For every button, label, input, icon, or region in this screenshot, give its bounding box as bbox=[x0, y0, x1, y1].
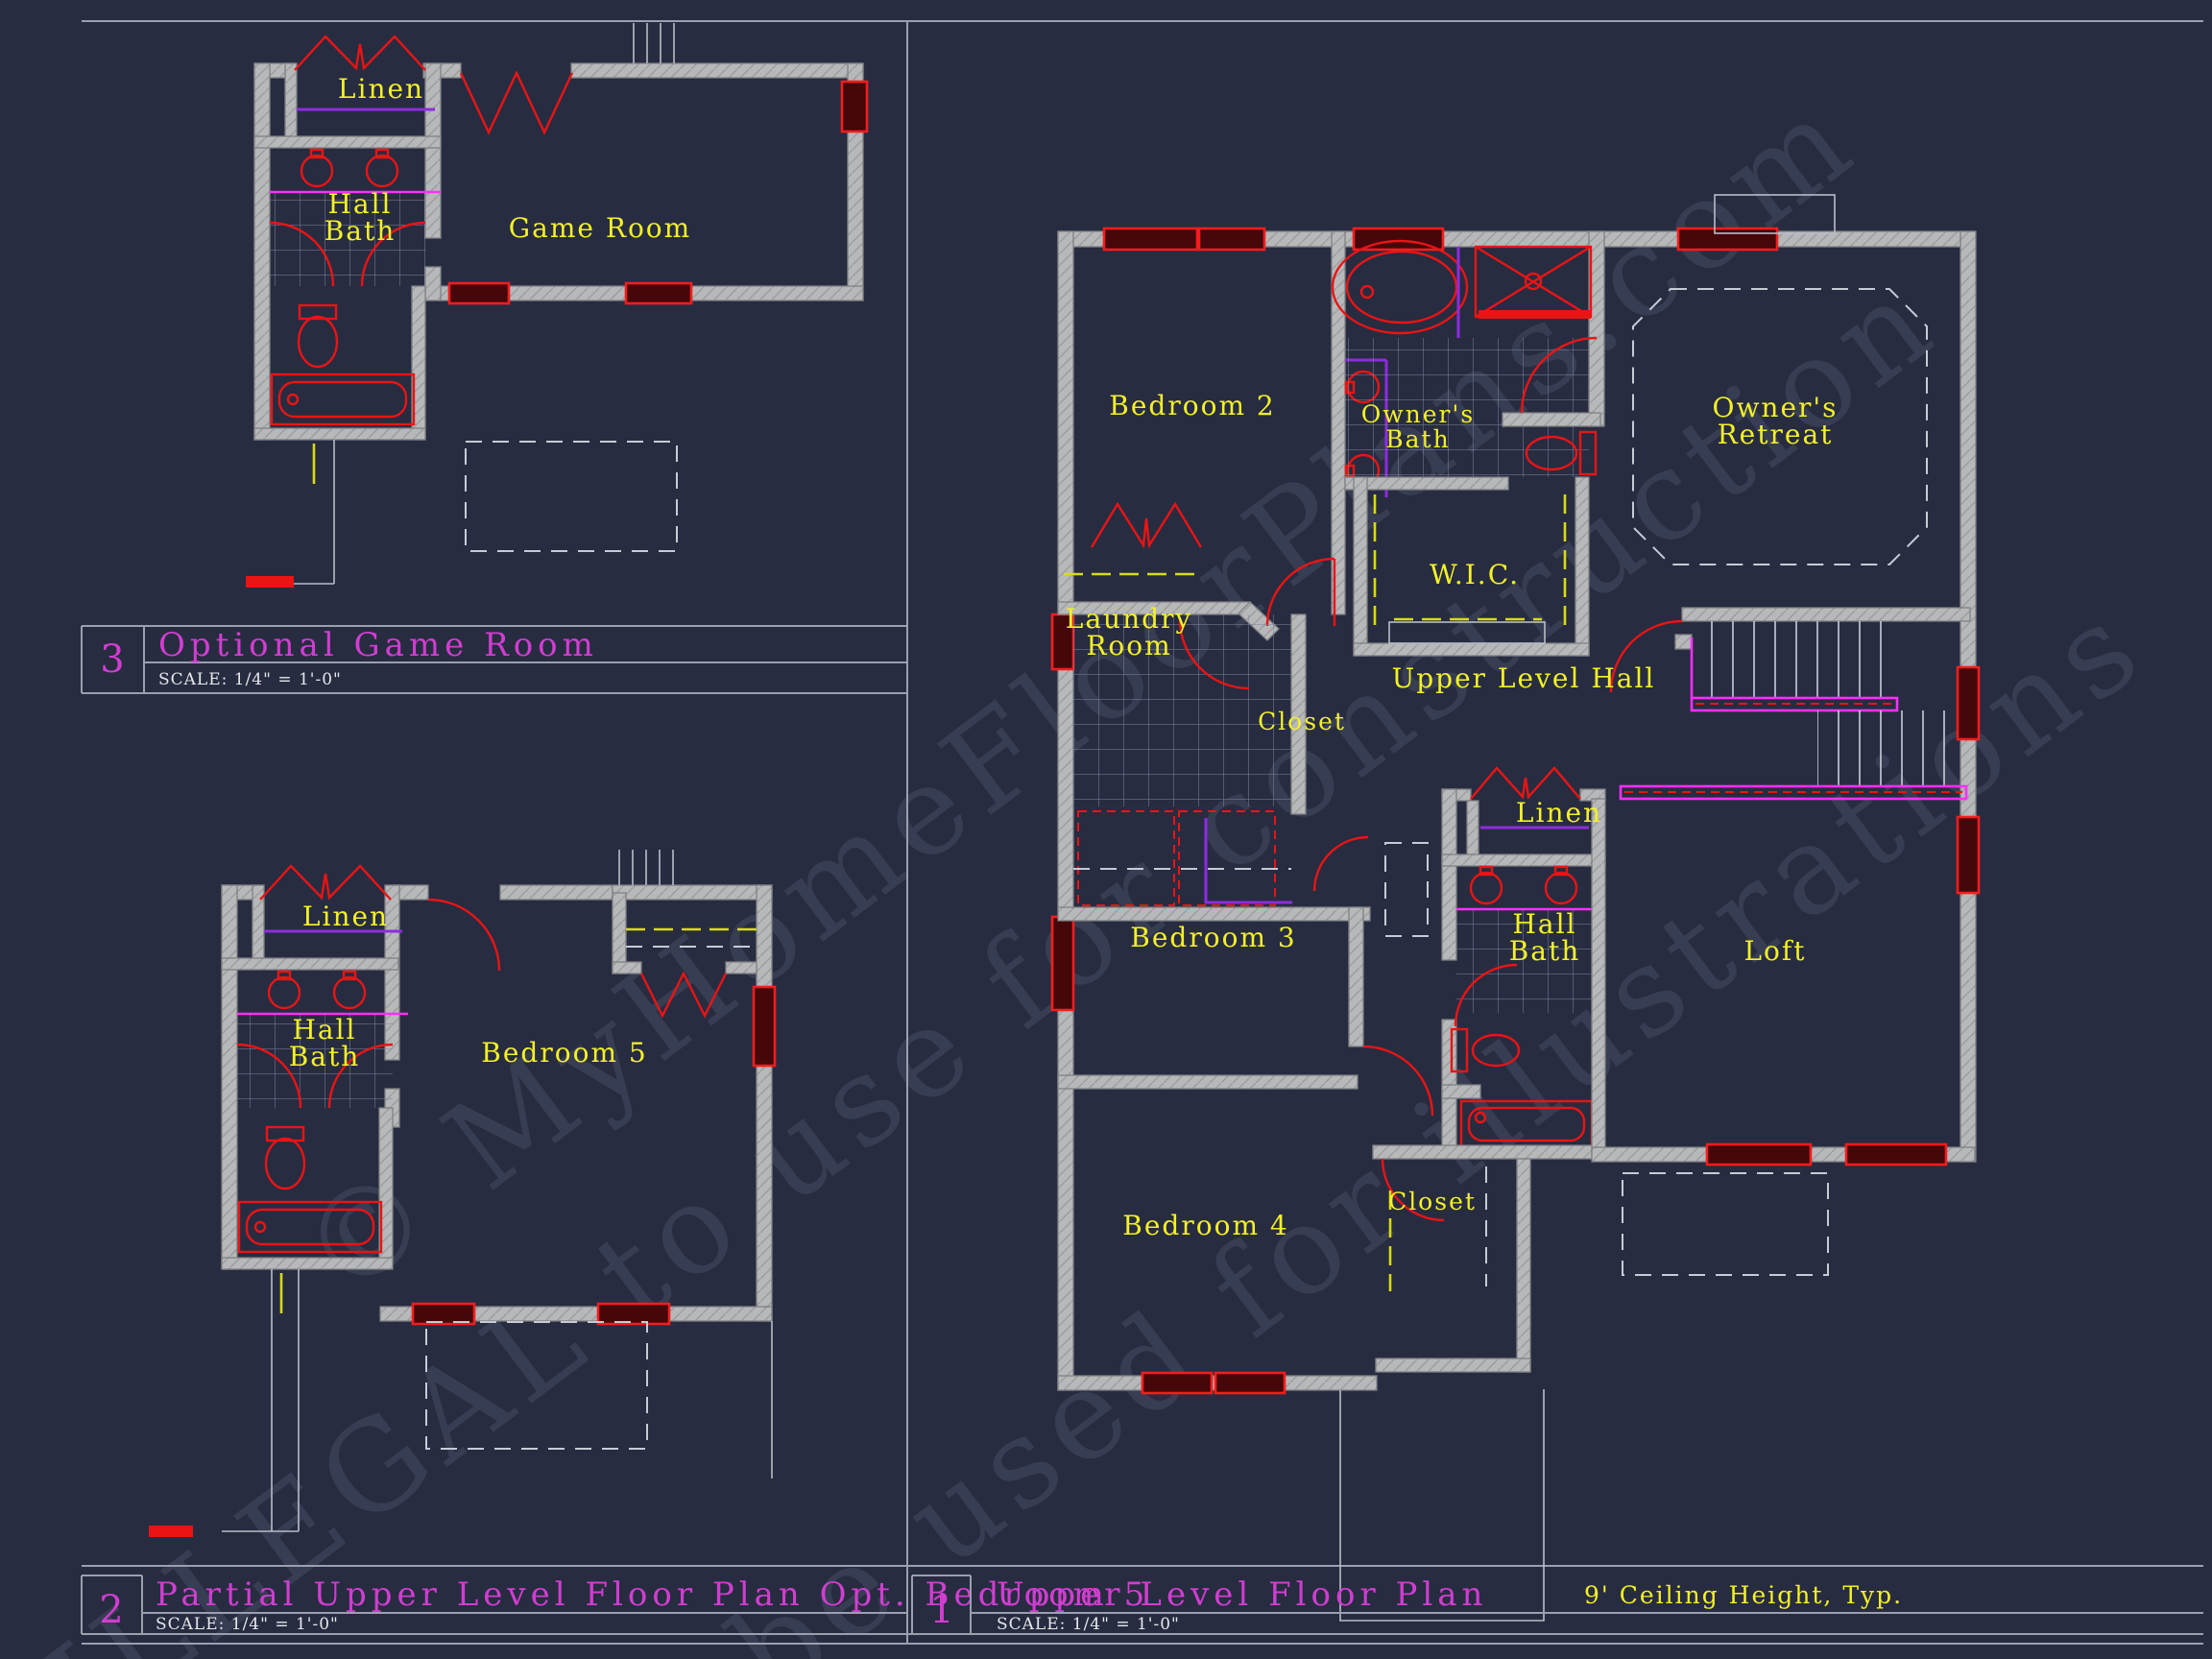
room-label-owners-bath-2: Bath bbox=[1385, 425, 1450, 453]
bifold-door bbox=[1471, 768, 1580, 799]
sink bbox=[1471, 867, 1576, 903]
bathtub bbox=[1333, 241, 1467, 333]
room-label-owners-retreat-2: Retreat bbox=[1718, 419, 1834, 450]
room-label-hall-bath-2: Bath bbox=[325, 215, 397, 247]
sink bbox=[301, 150, 397, 186]
title-block-3: 3 Optional Game Room SCALE: 1/4" = 1'-0" bbox=[82, 626, 907, 693]
door-swing bbox=[1314, 837, 1368, 891]
plan-title: Upper Level Floor Plan bbox=[997, 1575, 1487, 1614]
window bbox=[1707, 1144, 1811, 1165]
window bbox=[1958, 817, 1979, 893]
room-label-bedroom2: Bedroom 2 bbox=[1109, 390, 1275, 421]
sink bbox=[269, 972, 365, 1008]
window bbox=[598, 1304, 669, 1324]
bathtub bbox=[272, 374, 414, 424]
plan-title: Optional Game Room bbox=[158, 626, 598, 664]
room-label-owners-bath-1: Owner's bbox=[1361, 400, 1475, 428]
watermark: © MyHomeFloorPlans.com ILLEGAL to use fo… bbox=[22, 65, 2171, 1659]
toilet bbox=[266, 1127, 304, 1189]
window bbox=[1142, 1373, 1212, 1393]
room-label-hall-bath-2: Bath bbox=[289, 1041, 361, 1072]
bifold-door bbox=[295, 36, 425, 70]
title-block-1: 1 Upper Level Floor Plan 9' Ceiling Heig… bbox=[912, 1575, 2203, 1634]
toilet bbox=[299, 305, 337, 367]
window bbox=[1052, 917, 1073, 1010]
room-label-game-room: Game Room bbox=[509, 212, 691, 244]
lower-level-outline bbox=[246, 440, 677, 588]
plan-number: 3 bbox=[100, 637, 124, 682]
window bbox=[1846, 1144, 1946, 1165]
plan-number: 1 bbox=[929, 1588, 953, 1632]
plan-scale: SCALE: 1/4" = 1'-0" bbox=[156, 1615, 339, 1634]
room-label-loft: Loft bbox=[1743, 935, 1806, 967]
window bbox=[1678, 228, 1777, 250]
tick-marks bbox=[619, 850, 673, 885]
room-label-bedroom5: Bedroom 5 bbox=[481, 1037, 647, 1069]
room-label-linen: Linen bbox=[338, 73, 424, 105]
cad-drawing: © MyHomeFloorPlans.com ILLEGAL to use fo… bbox=[0, 0, 2212, 1659]
attic-access-outline bbox=[1385, 843, 1428, 936]
plan-scale: SCALE: 1/4" = 1'-0" bbox=[158, 670, 342, 689]
window bbox=[1199, 228, 1264, 250]
door-swing bbox=[428, 900, 499, 971]
window bbox=[413, 1304, 474, 1324]
window bbox=[842, 82, 867, 132]
room-label-linen: Linen bbox=[1516, 797, 1602, 829]
room-label-bedroom4: Bedroom 4 bbox=[1122, 1210, 1288, 1241]
ceiling-height-note: 9' Ceiling Height, Typ. bbox=[1584, 1581, 1903, 1609]
room-label-linen: Linen bbox=[302, 901, 389, 932]
room-label-bedroom3: Bedroom 3 bbox=[1130, 922, 1296, 953]
bifold-door bbox=[260, 866, 391, 900]
window bbox=[1104, 228, 1197, 250]
floor-plan-sheet: © MyHomeFloorPlans.com ILLEGAL to use fo… bbox=[0, 0, 2212, 1659]
room-label-hall-bath-2: Bath bbox=[1509, 935, 1581, 967]
room-label-upper-level-hall: Upper Level Hall bbox=[1392, 662, 1656, 694]
room-label-bedroom4-closet: Closet bbox=[1388, 1188, 1477, 1215]
room-label-laundry-2: Room bbox=[1086, 630, 1171, 661]
window bbox=[626, 283, 691, 303]
room-label-wic: W.I.C. bbox=[1430, 559, 1520, 590]
window bbox=[754, 987, 775, 1066]
window bbox=[1215, 1373, 1285, 1393]
plan-3-optional-game-room: Linen Hall Bath Game Room bbox=[246, 23, 867, 588]
tick-marks bbox=[634, 23, 674, 63]
plan-scale: SCALE: 1/4" = 1'-0" bbox=[997, 1615, 1180, 1634]
lower-roof-outline bbox=[1623, 1173, 1828, 1275]
double-door bbox=[461, 73, 572, 132]
window bbox=[449, 283, 509, 303]
plan-number: 2 bbox=[99, 1588, 123, 1632]
room-label-hall-closet: Closet bbox=[1258, 708, 1346, 735]
title-block-2: 2 Partial Upper Level Floor Plan Opt. Be… bbox=[82, 1575, 1149, 1634]
